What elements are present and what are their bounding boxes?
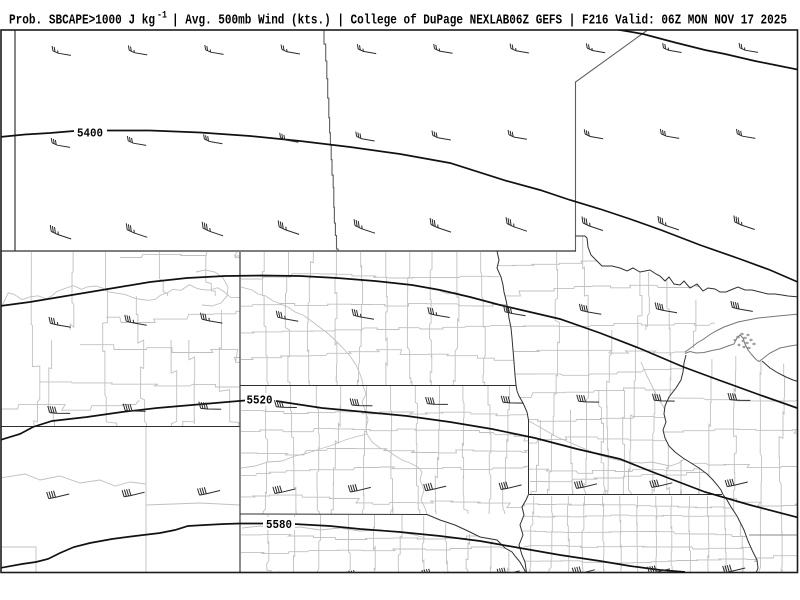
svg-text:5400: 5400 <box>77 127 103 141</box>
svg-text:Prob. SBCAPE>1000 J kg: Prob. SBCAPE>1000 J kg <box>9 13 155 29</box>
svg-text:-1: -1 <box>157 11 167 22</box>
svg-text:| Avg. 500mb Wind (kts.) | Col: | Avg. 500mb Wind (kts.) | College of Du… <box>172 13 787 29</box>
svg-text:5580: 5580 <box>266 518 292 532</box>
svg-text:5520: 5520 <box>247 394 273 408</box>
